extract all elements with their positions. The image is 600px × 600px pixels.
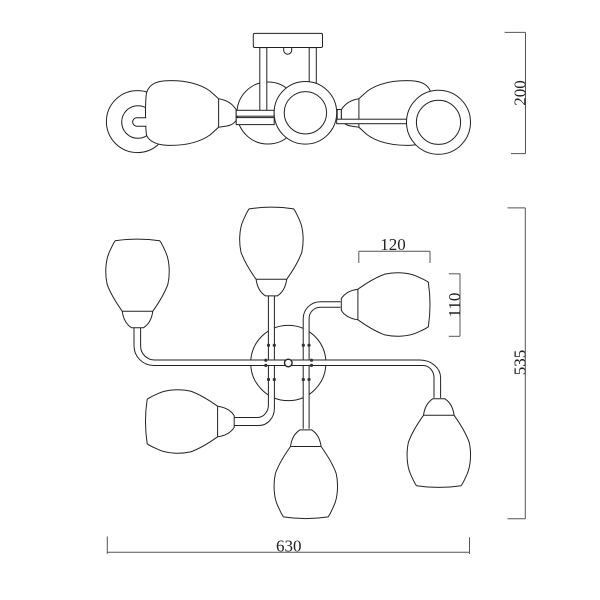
svg-text:110: 110: [445, 293, 464, 318]
svg-text:535: 535: [510, 350, 529, 376]
svg-text:120: 120: [380, 235, 406, 254]
svg-text:200: 200: [510, 80, 529, 106]
svg-text:630: 630: [276, 537, 302, 556]
